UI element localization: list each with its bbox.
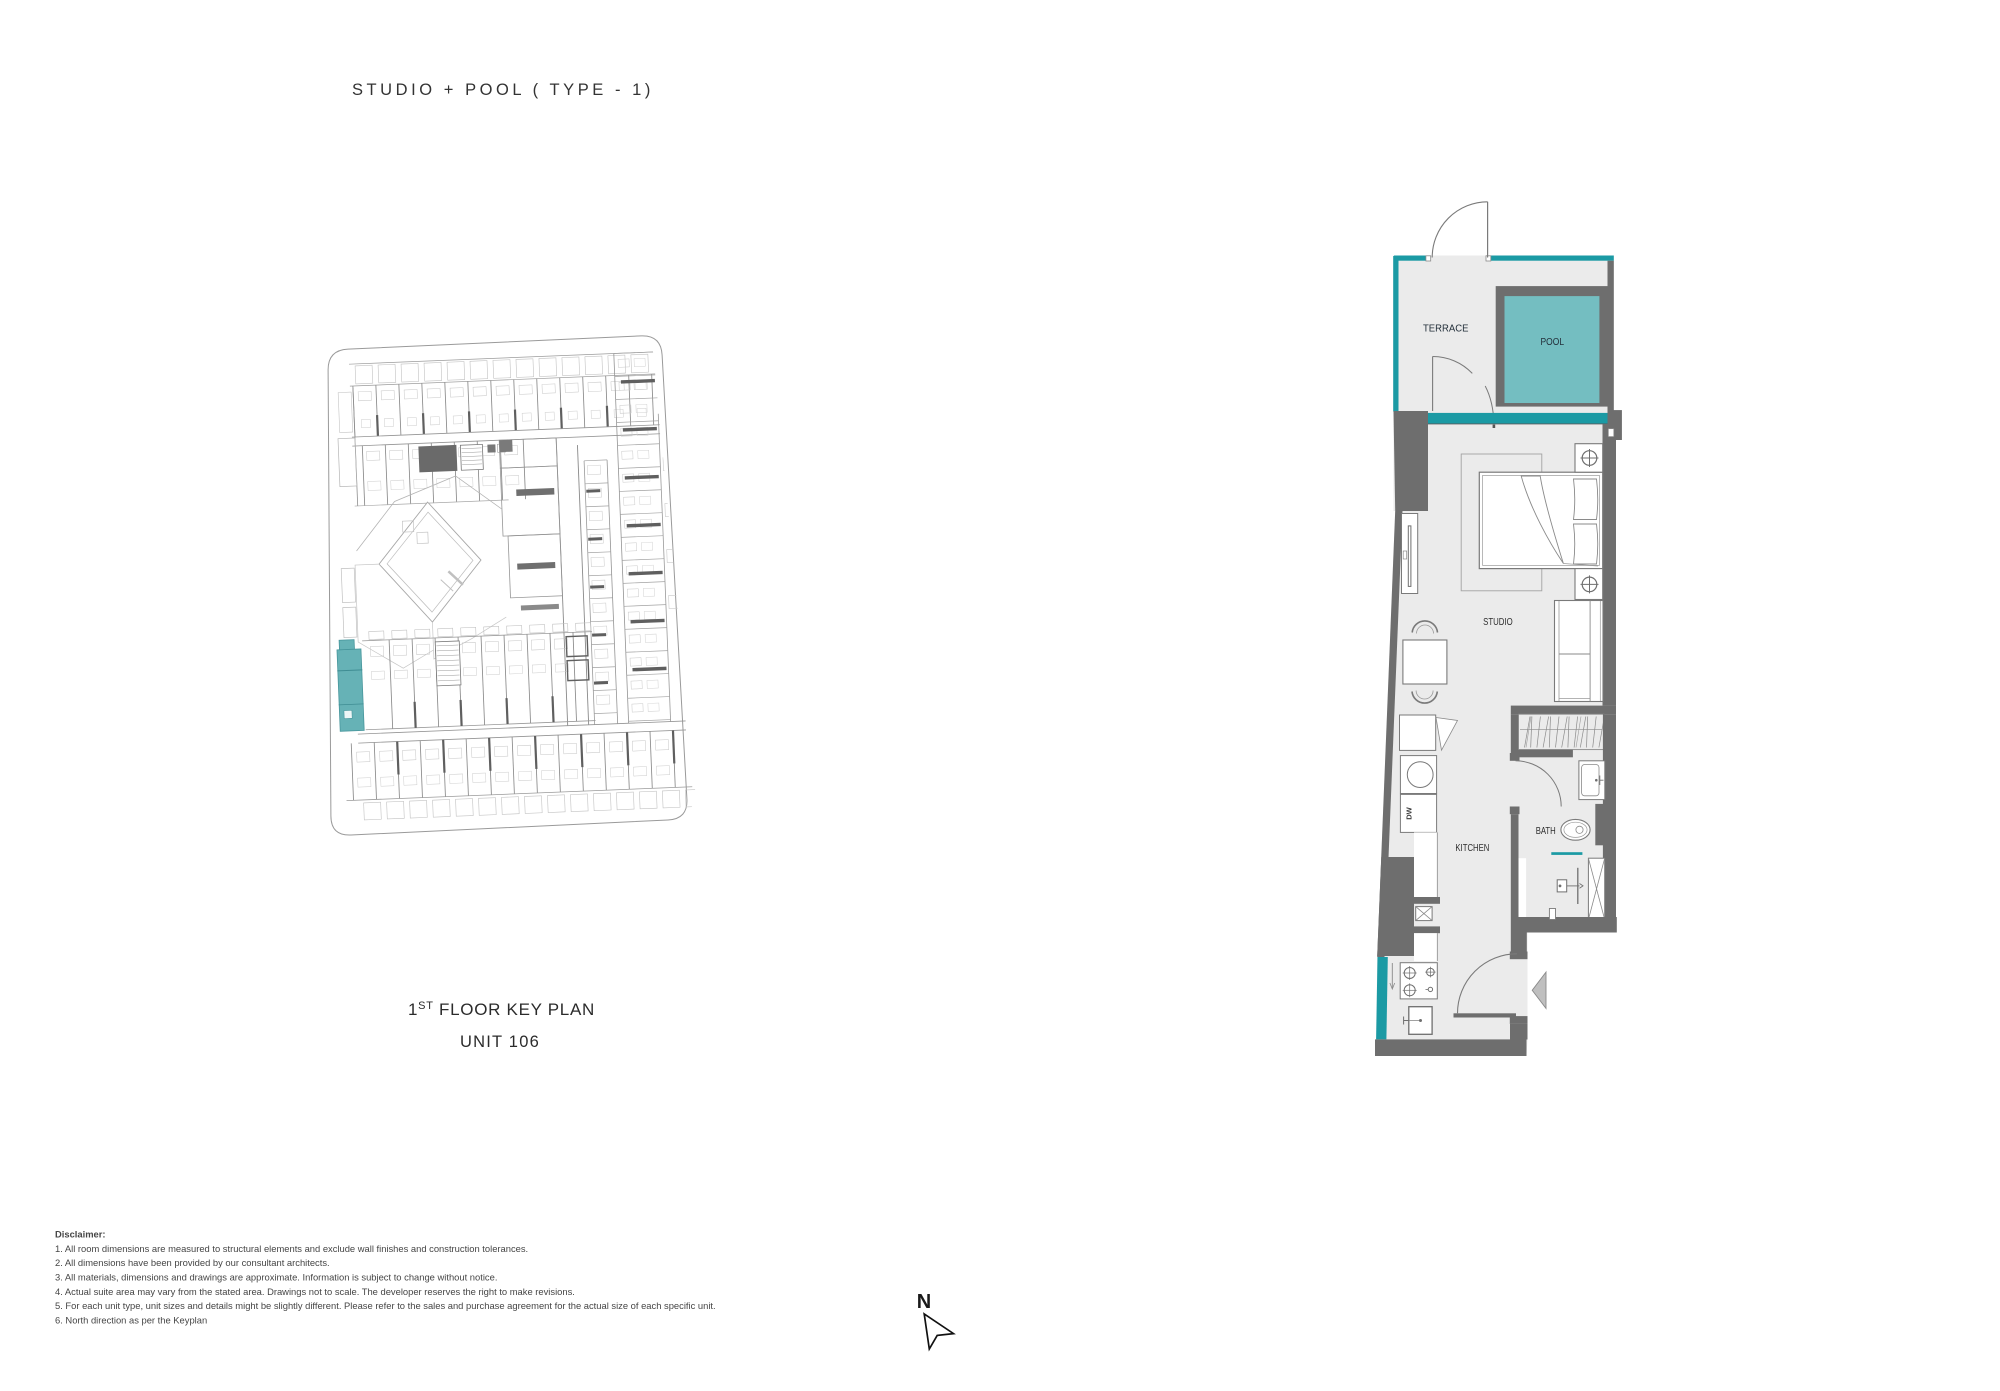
svg-text:1. All room dimensions are mea: 1. All room dimensions are measured to s… bbox=[55, 1243, 528, 1254]
svg-text:4. Actual suite area may vary: 4. Actual suite area may vary from the s… bbox=[55, 1286, 575, 1297]
svg-text:5. For each unit type, unit si: 5. For each unit type, unit sizes and de… bbox=[55, 1300, 716, 1311]
svg-text:DW: DW bbox=[1405, 806, 1414, 819]
svg-text:6. North direction as per the: 6. North direction as per the Keyplan bbox=[55, 1315, 207, 1326]
svg-text:KITCHEN: KITCHEN bbox=[1455, 843, 1489, 854]
svg-text:BATH: BATH bbox=[1536, 826, 1556, 837]
svg-text:Disclaimer:: Disclaimer: bbox=[55, 1229, 106, 1240]
svg-text:2. All dimensions have been pr: 2. All dimensions have been provided by … bbox=[55, 1257, 330, 1268]
svg-text:N: N bbox=[917, 1291, 931, 1313]
svg-text:UNIT 106: UNIT 106 bbox=[460, 1033, 540, 1051]
svg-text:TERRACE: TERRACE bbox=[1423, 324, 1469, 335]
svg-text:3. All materials, dimensions a: 3. All materials, dimensions and drawing… bbox=[55, 1272, 497, 1283]
svg-text:POOL: POOL bbox=[1541, 337, 1565, 348]
svg-text:1ST FLOOR KEY PLAN: 1ST FLOOR KEY PLAN bbox=[408, 1000, 595, 1019]
svg-text:STUDIO + POOL ( TYPE - 1): STUDIO + POOL ( TYPE - 1) bbox=[352, 81, 654, 99]
svg-text:STUDIO: STUDIO bbox=[1483, 617, 1513, 628]
